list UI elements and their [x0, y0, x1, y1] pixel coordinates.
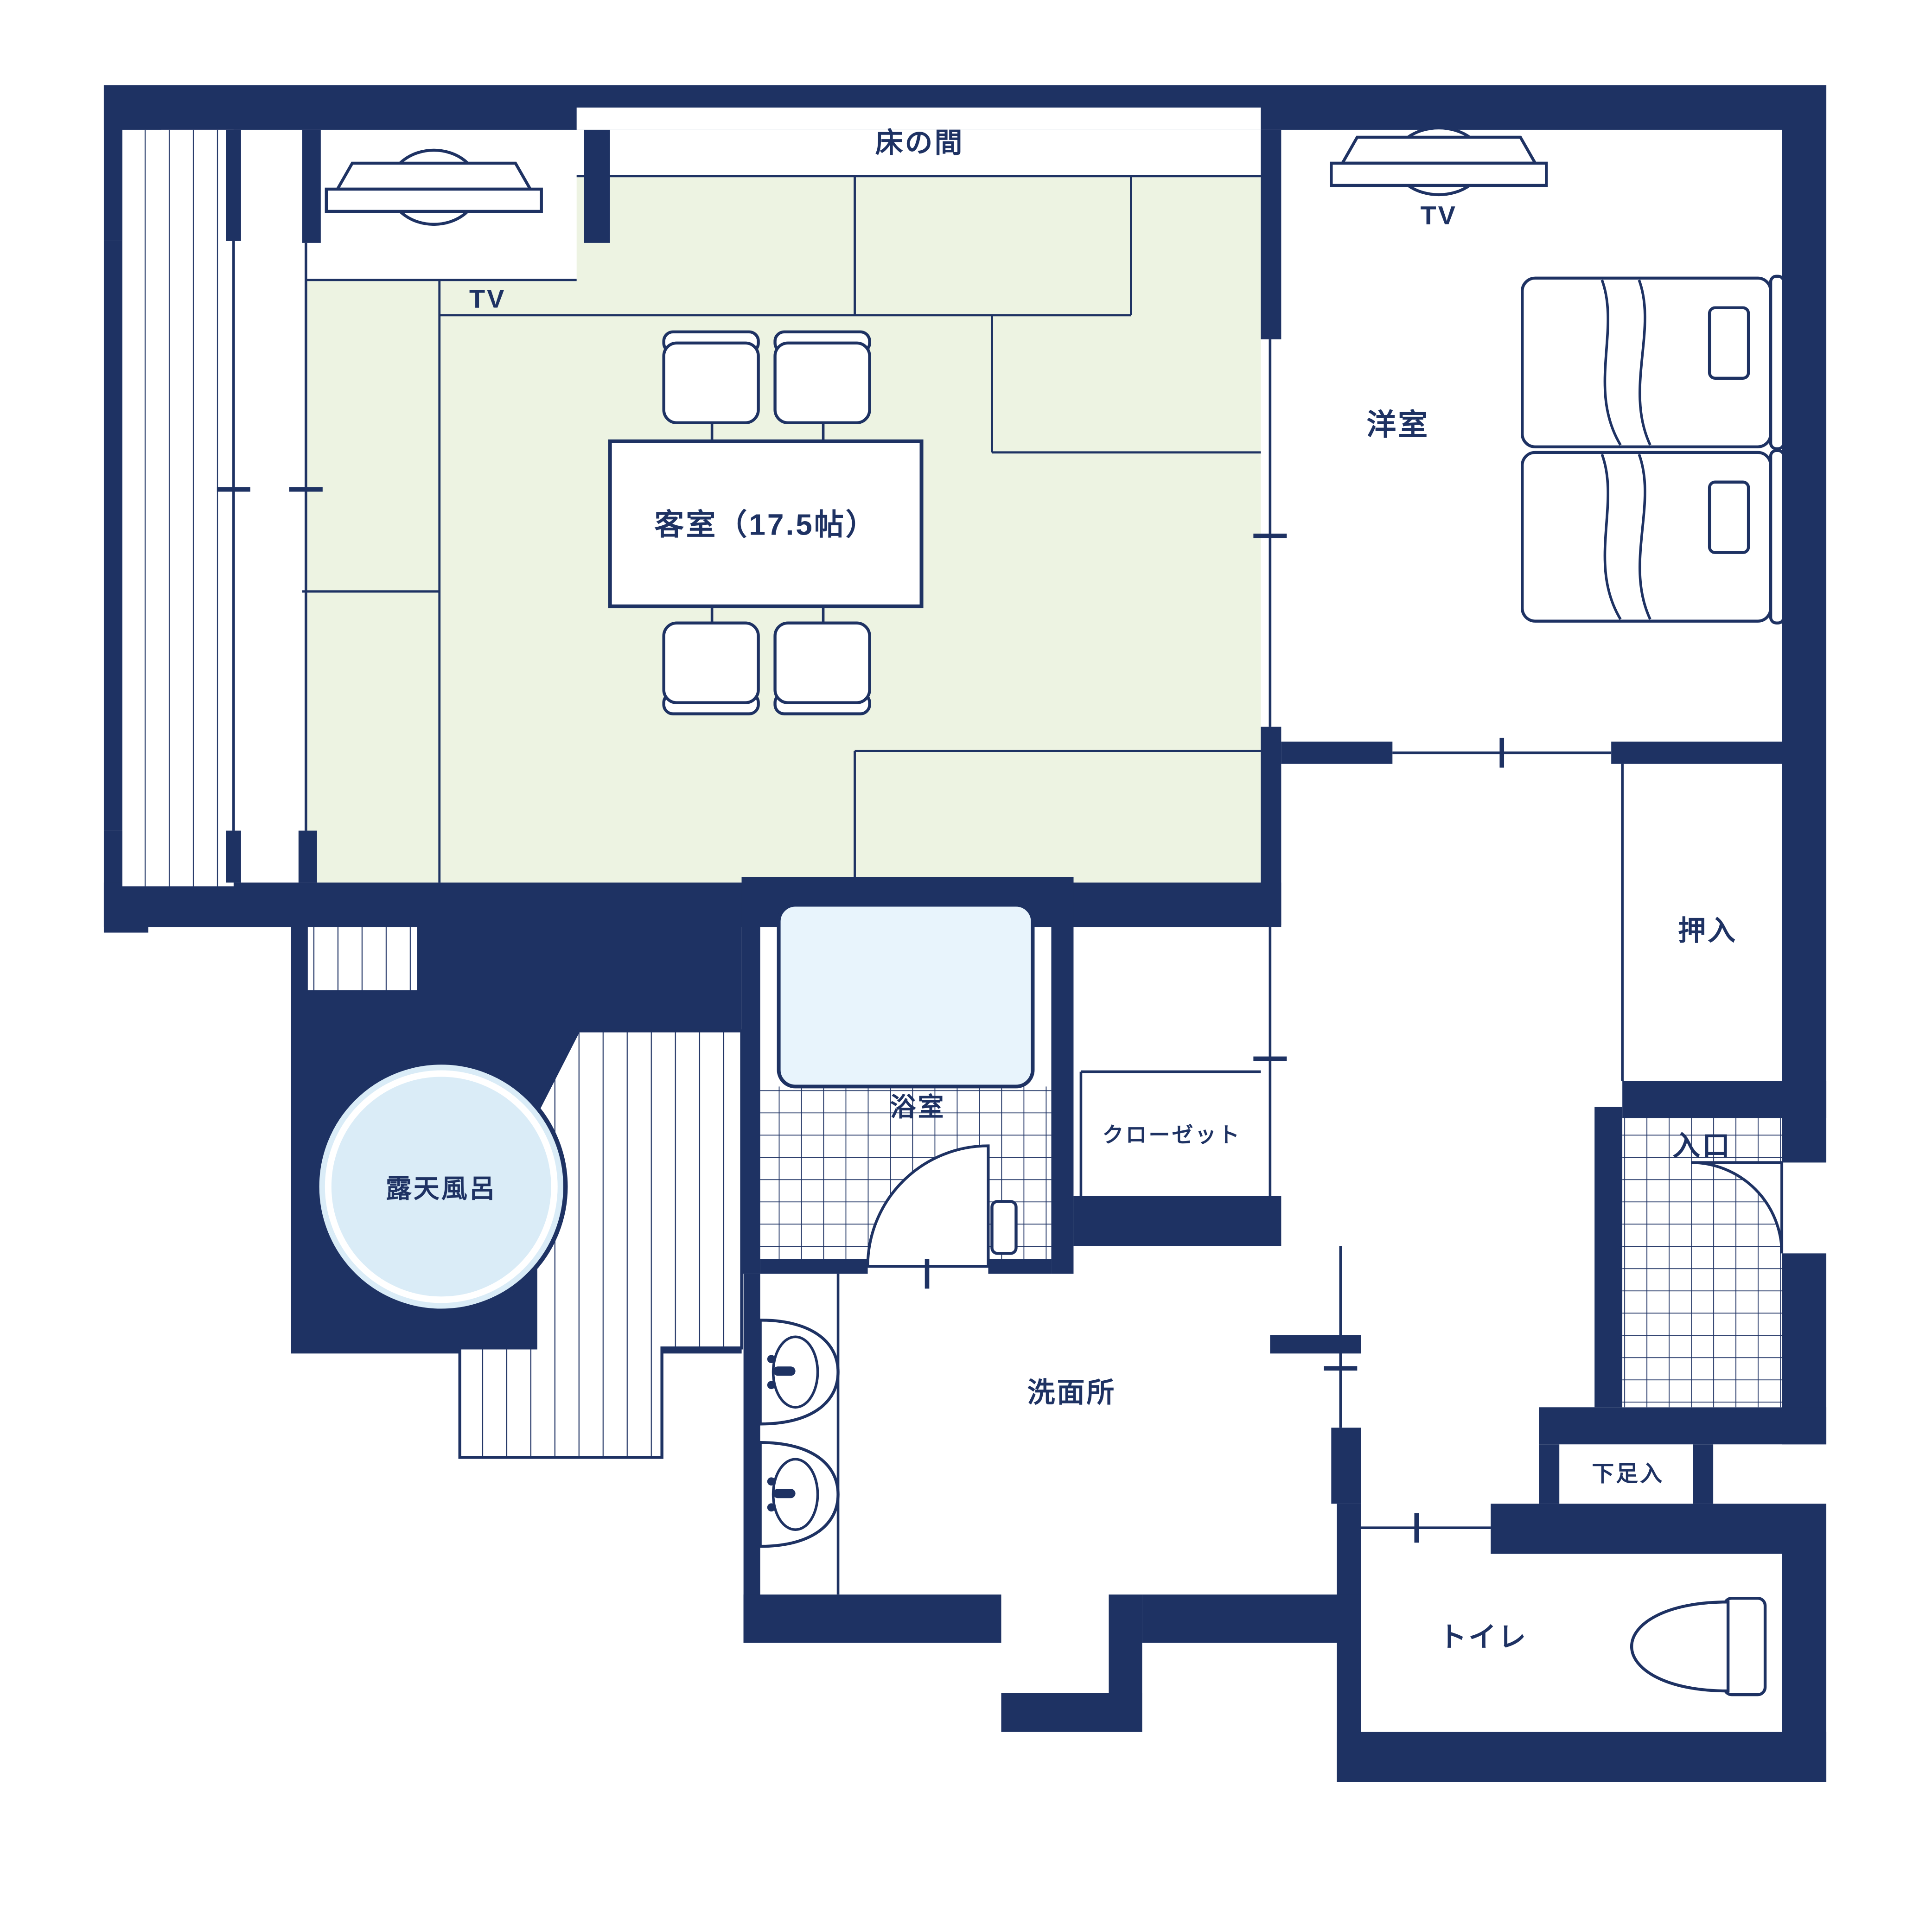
- chair-icon: [775, 606, 870, 714]
- pillow-icon: [1709, 308, 1748, 378]
- entrance-label: 入口: [1672, 1130, 1732, 1161]
- veranda-planks: [122, 130, 234, 886]
- floor-plan: 露天風呂 浴室 入口 床の間: [0, 0, 1932, 1932]
- closet-label: クローゼット: [1102, 1122, 1241, 1147]
- western-room-label: 洋室: [1366, 408, 1429, 441]
- washroom-label: 洗面所: [1027, 1377, 1116, 1408]
- tv-western-label: TV: [1420, 200, 1457, 230]
- toilet-label: トイレ: [1439, 1622, 1528, 1653]
- room-entrance: 入口: [1622, 1118, 1782, 1407]
- shoe-cabinet-label: 下足入: [1592, 1462, 1664, 1486]
- chair-icon: [664, 606, 759, 714]
- bathroom-label: 浴室: [890, 1092, 946, 1122]
- tv-western-icon: [1331, 128, 1546, 195]
- bed-icon: [1522, 276, 1784, 449]
- oshiire-label: 押入: [1678, 915, 1737, 946]
- tv-guest-label: TV: [469, 284, 506, 313]
- shower-fixture-icon: [992, 1201, 1016, 1253]
- pillow-icon: [1709, 482, 1748, 553]
- headboard-icon: [1771, 451, 1784, 623]
- room-bathroom: 浴室: [742, 877, 1074, 1289]
- bed-icon: [1522, 451, 1784, 623]
- headboard-icon: [1771, 276, 1784, 449]
- guest-room-label: 客室（17.5帖）: [654, 508, 877, 542]
- tokonoma-label: 床の間: [875, 127, 964, 158]
- bathtub-icon: [779, 905, 1033, 1087]
- open-air-bath-label: 露天風呂: [386, 1174, 497, 1203]
